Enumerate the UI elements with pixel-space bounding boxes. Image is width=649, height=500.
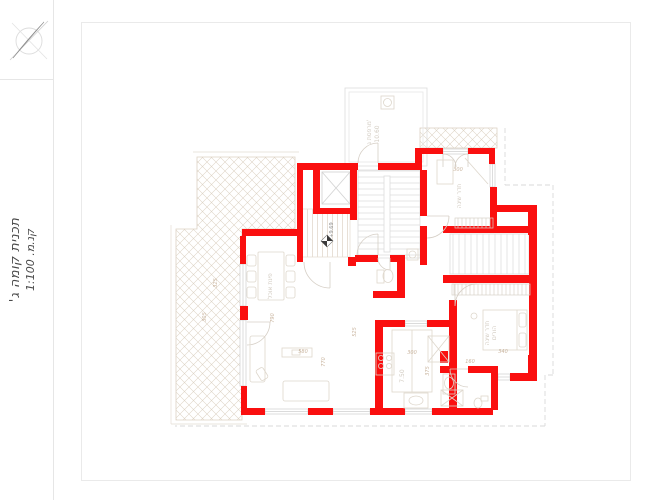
room-label: פינת אוכל xyxy=(267,273,274,299)
room-label: חדר שינה xyxy=(484,321,491,345)
dimension-label: 160 xyxy=(465,359,475,365)
staircase-right xyxy=(450,234,529,274)
room-label: חדר שינה xyxy=(456,184,463,208)
dimension-label: 325 xyxy=(213,278,219,288)
elevator-shaft xyxy=(322,172,350,204)
dimension-label: 770 xyxy=(321,357,327,367)
ramp-stairs xyxy=(302,209,350,257)
room-label: הורים xyxy=(491,326,498,340)
dimension-label: 790 xyxy=(270,313,276,323)
dimension-label: 305 xyxy=(202,312,208,322)
staircase-main xyxy=(358,170,420,258)
floor-plan: +9.69 300 300 375 340 160 790 525 580 77… xyxy=(0,0,649,500)
thin-linework xyxy=(345,88,427,166)
dimension-label: 340 xyxy=(498,349,508,355)
dimension-label: 300 xyxy=(453,167,463,173)
level-label: +9.69 xyxy=(329,222,335,237)
room-label: 10.60 xyxy=(374,125,381,142)
room-label: 7.50 xyxy=(399,369,406,383)
dimension-label: 525 xyxy=(352,327,358,337)
dimension-label: 300 xyxy=(407,350,417,356)
room-label: מרפסת ג' xyxy=(366,119,373,144)
dimension-label: 375 xyxy=(425,366,431,376)
drawing-sheet: תכנית קומה ג' קנ.מ. 1:100 xyxy=(0,0,649,500)
dimension-label: 580 xyxy=(298,349,308,355)
